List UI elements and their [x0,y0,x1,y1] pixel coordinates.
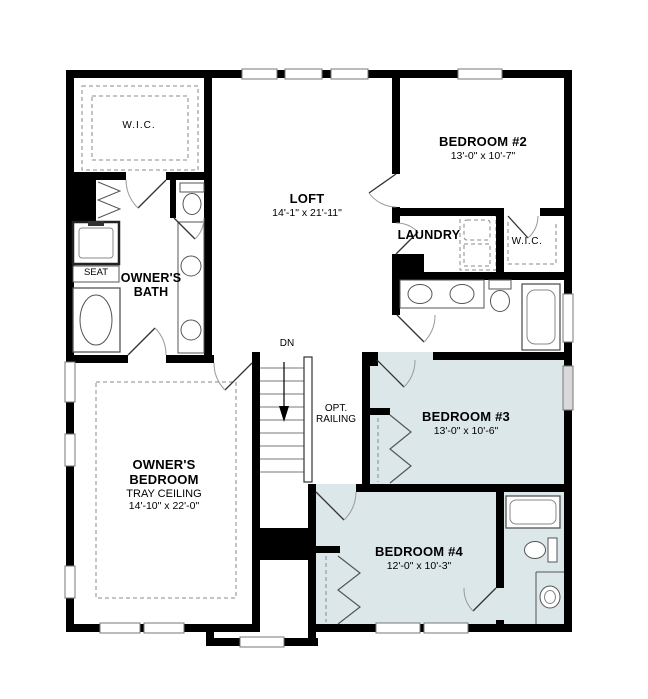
room-dimensions: 14'-10" x 22'-0" [108,501,220,513]
room-label-bedroom-3: BEDROOM #3 13'-0" x 10'-6" [422,410,510,437]
room-name: W.I.C. [512,236,543,247]
room-name: W.I.C. [122,120,155,131]
room-name: LOFT [272,192,342,207]
window [563,294,573,342]
wall-linen-chase [74,180,96,222]
door-leaf [128,328,155,355]
window [458,69,502,79]
wall-suite-divider [204,70,212,355]
room-label-wic-owner: W.I.C. [122,120,155,131]
wall-bedroom2-bottom-left [392,208,504,216]
room-name: BEDROOM #4 [375,545,463,560]
wall-bedroom3-top [433,352,572,360]
window [331,69,368,79]
stair-treads [260,368,304,472]
annotation-text: SEAT [84,267,108,278]
toilet-tank [489,280,511,289]
annotation-opt-railing: OPT. RAILING [308,403,364,425]
door-leaf [508,216,528,238]
washer-dryer-inner [464,220,490,240]
wall-bath4-west-b [496,620,504,626]
door-leaf [397,315,424,342]
washer-dryer-inner2 [464,244,490,266]
sink-basin [545,591,556,604]
window [285,69,322,79]
annotation-stairs-down: DN [280,338,294,349]
window-shaded [563,366,573,410]
wall-bedroom2-west-a [392,78,400,174]
room-name: OWNER'S BEDROOM [108,458,220,487]
sink-fixture [450,285,474,304]
toilet-fixture [525,542,546,559]
toilet-fixture [491,291,510,312]
toilet-fixture [183,194,201,215]
room-label-owners-bath: OWNER'S BATH [111,271,191,299]
wall-bath4-west [496,492,504,588]
annotation-text: OPT. RAILING [316,403,356,425]
door-leaf [225,363,252,390]
wall-right [564,70,572,632]
door-arc [369,193,396,207]
bathtub-basin [510,500,556,524]
annotation-text: DN [280,338,294,349]
wall-laundry-corner [392,254,424,274]
floor-plan: W.I.C. LOFT 14'-1" x 21'-11" BEDROOM #2 … [0,0,648,699]
sink-fixture [181,320,201,340]
room-label-bedroom-4: BEDROOM #4 12'-0" x 10'-3" [375,545,463,572]
room-label-wic-bedroom2: W.I.C. [512,236,543,247]
window [144,623,184,633]
room-dimensions: 13'-0" x 10'-6" [422,426,510,438]
shower-head [88,221,104,226]
wall-hallbath-west [392,280,400,315]
wall-bedroom4-left [308,484,316,646]
door-arc [155,328,166,355]
room-name: BEDROOM #3 [422,410,510,425]
wall-stair-landing [256,528,308,560]
door-leaf [369,174,396,193]
window [65,566,75,598]
toilet-tank [180,183,204,192]
window [242,69,277,79]
door-arc [214,363,225,390]
room-label-loft: LOFT 14'-1" x 21'-11" [272,192,342,219]
washer-dryer [460,214,496,270]
room-dimensions: 13'-0" x 10'-7" [439,151,527,163]
door-leaf [138,180,166,208]
window [65,362,75,402]
wall-wic1-bottom-right [166,172,210,180]
wall-bedroom3-closet-top [370,408,390,415]
bathtub-basin [527,290,555,344]
wall-wc-nook [170,180,176,218]
sink-fixture [408,285,432,304]
annotation-seat: SEAT [84,268,108,279]
window [424,623,468,633]
room-name: BEDROOM #2 [439,135,527,150]
door-arc [424,315,435,342]
hall-bath-fixtures [400,280,560,350]
door-arc [528,216,538,238]
wall-bedroom2-bottom-right [540,208,572,216]
door-arc [126,180,138,208]
room-name: LAUNDRY [398,228,461,242]
room-dimensions: 14'-1" x 21'-11" [272,208,342,220]
wall-wic1-bottom-left [66,172,126,180]
room-label-laundry: LAUNDRY [398,228,461,242]
room-feature: TRAY CEILING [108,488,220,500]
stairs [260,357,312,482]
room-dimensions: 12'-0" x 10'-3" [375,561,463,573]
bathtub-basin [80,295,112,345]
toilet-tank [548,538,557,562]
window [100,623,140,633]
wall-owner-top-mid [166,355,214,363]
wall-stair-left [252,352,260,632]
floor-plan-drawing [0,0,648,699]
shower-pan [79,228,113,258]
wall-bedroom3-4-divider [356,484,572,492]
window [376,623,420,633]
room-label-bedroom-2: BEDROOM #2 13'-0" x 10'-7" [439,135,527,162]
room-name: OWNER'S BATH [111,271,191,299]
room-label-owners-bedroom: OWNER'S BEDROOM TRAY CEILING 14'-10" x 2… [108,458,220,513]
wall-laundry-bath-divider [392,272,572,280]
linen-bifold-doors [98,182,120,218]
wall-laundry-wic2-divider [496,208,504,274]
window [65,434,75,466]
wall-bedroom4-closet-top [316,546,340,553]
bay-window [240,637,284,647]
